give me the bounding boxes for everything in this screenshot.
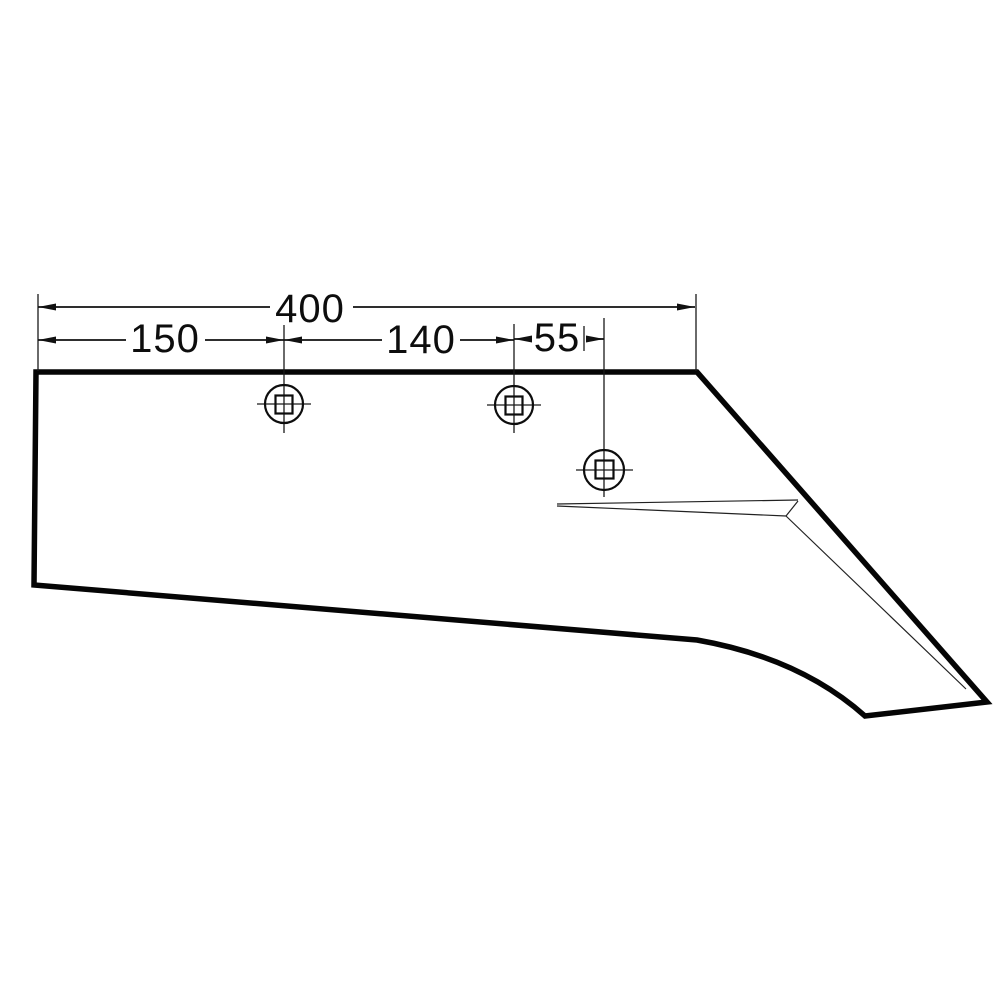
dimension-label-55: 55	[534, 316, 581, 360]
dimension-label-140: 140	[386, 318, 456, 362]
dimension-label-400: 400	[275, 287, 345, 331]
dimension-55: 55	[514, 316, 604, 360]
dim400-arrow-left	[38, 304, 56, 311]
dim55-arrow-left	[514, 336, 532, 343]
dimension-150: 150	[38, 317, 284, 361]
plowshare-technical-drawing: 400 150 140 55	[0, 0, 1000, 1000]
dim55-arrow-right	[586, 336, 604, 343]
dim140-arrow-right	[496, 337, 514, 344]
drawing-canvas: 400 150 140 55	[0, 0, 1000, 1000]
dim150-arrow-left	[38, 337, 56, 344]
dim400-arrow-right	[677, 304, 695, 311]
dimension-label-150: 150	[130, 317, 200, 361]
dim140-arrow-left	[284, 337, 302, 344]
dim150-arrow-right	[266, 337, 284, 344]
